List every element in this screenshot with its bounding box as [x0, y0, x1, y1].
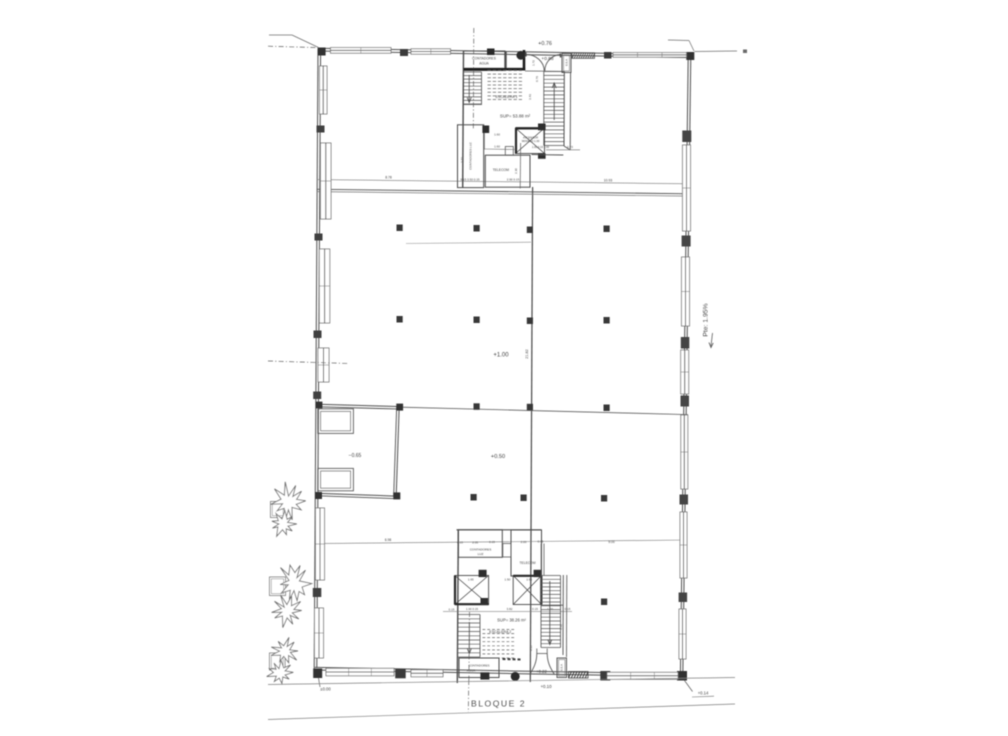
svg-text:10.93: 10.93	[604, 178, 613, 182]
svg-text:1.65: 1.65	[468, 577, 474, 581]
svg-text:+0.22: +0.22	[536, 669, 547, 674]
svg-text:CONTADORES: CONTADORES	[470, 548, 492, 552]
svg-text:BLOQUE 2: BLOQUE 2	[471, 699, 526, 709]
svg-text:+0.14: +0.14	[698, 691, 709, 696]
svg-text:0.76: 0.76	[535, 76, 539, 82]
svg-text:3.43: 3.43	[528, 94, 532, 100]
svg-text:MODELO 1.00: MODELO 1.00	[522, 139, 540, 143]
svg-text:0.73: 0.73	[567, 145, 573, 149]
svg-text:Pte: 1.95%: Pte: 1.95%	[703, 303, 710, 336]
svg-text:0.15: 0.15	[489, 540, 495, 544]
svg-text:1.72: 1.72	[532, 60, 536, 66]
svg-text:LUZ: LUZ	[478, 552, 484, 556]
svg-text:2.30: 2.30	[514, 168, 518, 174]
svg-text:−0.65: −0.65	[349, 453, 362, 459]
svg-text:3.43: 3.43	[559, 624, 563, 630]
svg-text:CONTADORES: CONTADORES	[469, 663, 490, 667]
svg-text:CONTADORES: CONTADORES	[472, 57, 496, 61]
svg-text:E.E.A: E.E.A	[564, 59, 568, 66]
svg-text:1.00 0.15: 1.00 0.15	[466, 607, 478, 611]
svg-text:SUP= 53.88 m²: SUP= 53.88 m²	[500, 114, 531, 119]
svg-text:0.15: 0.15	[538, 540, 544, 544]
svg-text:±0.00: ±0.00	[320, 687, 331, 692]
svg-text:AGUA: AGUA	[467, 668, 476, 672]
svg-text:0.15: 0.15	[532, 607, 538, 611]
svg-text:+0.76: +0.76	[538, 41, 552, 47]
svg-text:1.65: 1.65	[526, 577, 532, 581]
svg-text:0.15: 0.15	[565, 607, 571, 611]
svg-text:2.05: 2.05	[472, 540, 478, 544]
svg-text:0.15 3.50 0.15: 0.15 3.50 0.15	[460, 177, 480, 181]
svg-text:ASCENSOR: ASCENSOR	[523, 136, 538, 140]
svg-text:E.E.A: E.E.A	[560, 664, 564, 671]
svg-text:TELECOM: TELECOM	[520, 561, 536, 565]
svg-text:2.90 0.15: 2.90 0.15	[507, 177, 520, 181]
svg-text:1.00 0.15 1.00: 1.00 0.15 1.00	[532, 145, 550, 149]
svg-text:6.98: 6.98	[385, 538, 392, 542]
svg-text:+1.00: +1.00	[493, 353, 509, 359]
svg-text:AGUA: AGUA	[479, 62, 489, 66]
svg-text:1.60: 1.60	[494, 132, 500, 136]
svg-text:TELECOM: TELECOM	[493, 168, 510, 172]
svg-text:+0.50: +0.50	[491, 454, 505, 460]
svg-text:3.82: 3.82	[507, 607, 513, 611]
svg-text:3.73: 3.73	[460, 157, 464, 163]
svg-text:ESCALERA 1: ESCALERA 1	[496, 95, 518, 99]
svg-text:0.15: 0.15	[449, 608, 455, 612]
svg-text:ESCALERA 2: ESCALERA 2	[489, 630, 511, 634]
svg-text:9.00: 9.00	[608, 540, 615, 544]
svg-text:SUP= 38.26 m²: SUP= 38.26 m²	[497, 618, 526, 623]
svg-text:0.15: 0.15	[529, 645, 533, 651]
svg-text:CONTADORES LUZ: CONTADORES LUZ	[469, 142, 473, 170]
svg-text:1.60: 1.60	[494, 145, 500, 149]
svg-text:21.82: 21.82	[525, 349, 529, 359]
svg-text:+0.10: +0.10	[540, 684, 552, 689]
svg-text:1.50: 1.50	[504, 577, 510, 581]
svg-text:2.00: 2.00	[521, 540, 527, 544]
svg-text:8.78: 8.78	[385, 175, 392, 179]
